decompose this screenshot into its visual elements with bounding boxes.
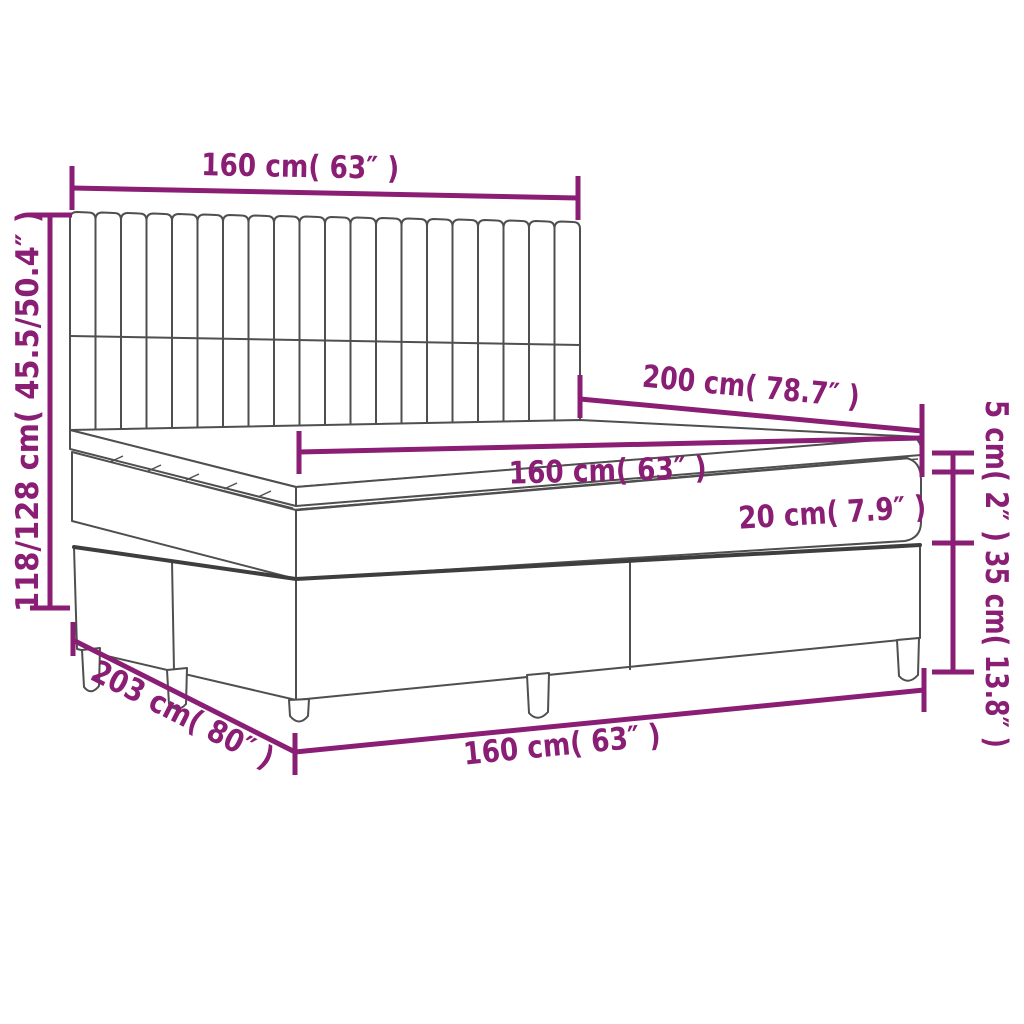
headboard-channel	[427, 219, 453, 425]
headboard-channel	[529, 221, 555, 424]
headboard-channels	[70, 212, 580, 431]
headboard-channel	[121, 213, 147, 430]
dim-label: 160 cm( 63″ )	[201, 147, 400, 187]
headboard-channel	[351, 218, 377, 427]
headboard-channel	[223, 215, 249, 429]
leg	[289, 699, 309, 722]
dim-right-heights: 5 cm( 2″ ) 35 cm( 13.8″ )	[932, 400, 1014, 748]
headboard	[70, 212, 580, 431]
headboard-channel	[478, 220, 504, 425]
dim-label-base-height: 35 cm( 13.8″ )	[978, 550, 1014, 748]
dim-line	[72, 188, 578, 198]
headboard-channel	[172, 214, 198, 429]
headboard-channel	[325, 217, 351, 427]
bed-dimension-diagram-page: 160 cm( 63″ ) 118/128 cm( 45.5/50.4″ ) 2…	[0, 0, 1024, 1024]
headboard-channel	[555, 222, 581, 424]
dim-bed-height: 118/128 cm( 45.5/50.4″ )	[10, 210, 72, 612]
headboard-channel	[453, 220, 479, 426]
headboard-channel	[300, 217, 326, 428]
leg	[897, 638, 919, 681]
dim-headboard-width: 160 cm( 63″ )	[72, 147, 578, 220]
bed-base	[74, 545, 920, 700]
headboard-channel	[376, 218, 402, 426]
headboard-channel	[402, 219, 428, 426]
headboard-channel	[249, 216, 275, 429]
dim-label-topper: 5 cm( 2″ )	[978, 400, 1014, 542]
bed-dimension-diagram: 160 cm( 63″ ) 118/128 cm( 45.5/50.4″ ) 2…	[0, 0, 1024, 1024]
headboard-channel	[70, 212, 96, 431]
headboard-channel	[96, 213, 122, 431]
dim-label: 160 cm( 63″ )	[508, 450, 707, 491]
headboard-channel	[198, 215, 224, 430]
leg	[527, 673, 549, 718]
headboard-channel	[504, 221, 530, 425]
dim-label: 118/128 cm( 45.5/50.4″ )	[10, 210, 46, 612]
headboard-channel	[274, 216, 300, 428]
headboard-channel	[147, 214, 173, 430]
